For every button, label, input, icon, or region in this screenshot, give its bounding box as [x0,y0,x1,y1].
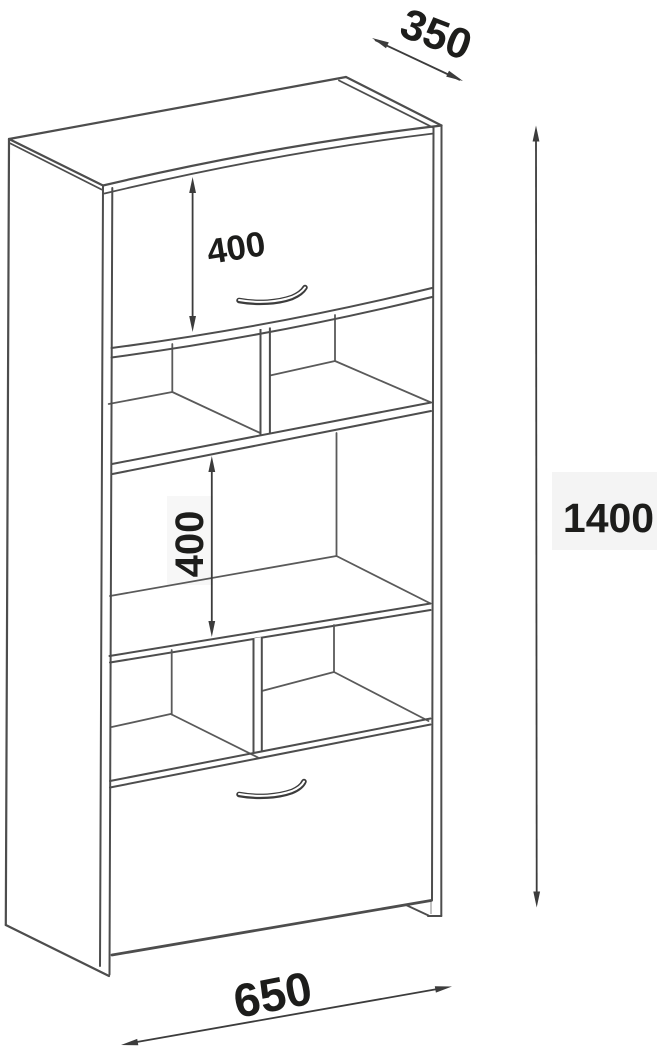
svg-text:400: 400 [168,511,212,578]
svg-text:1400: 1400 [563,495,654,541]
